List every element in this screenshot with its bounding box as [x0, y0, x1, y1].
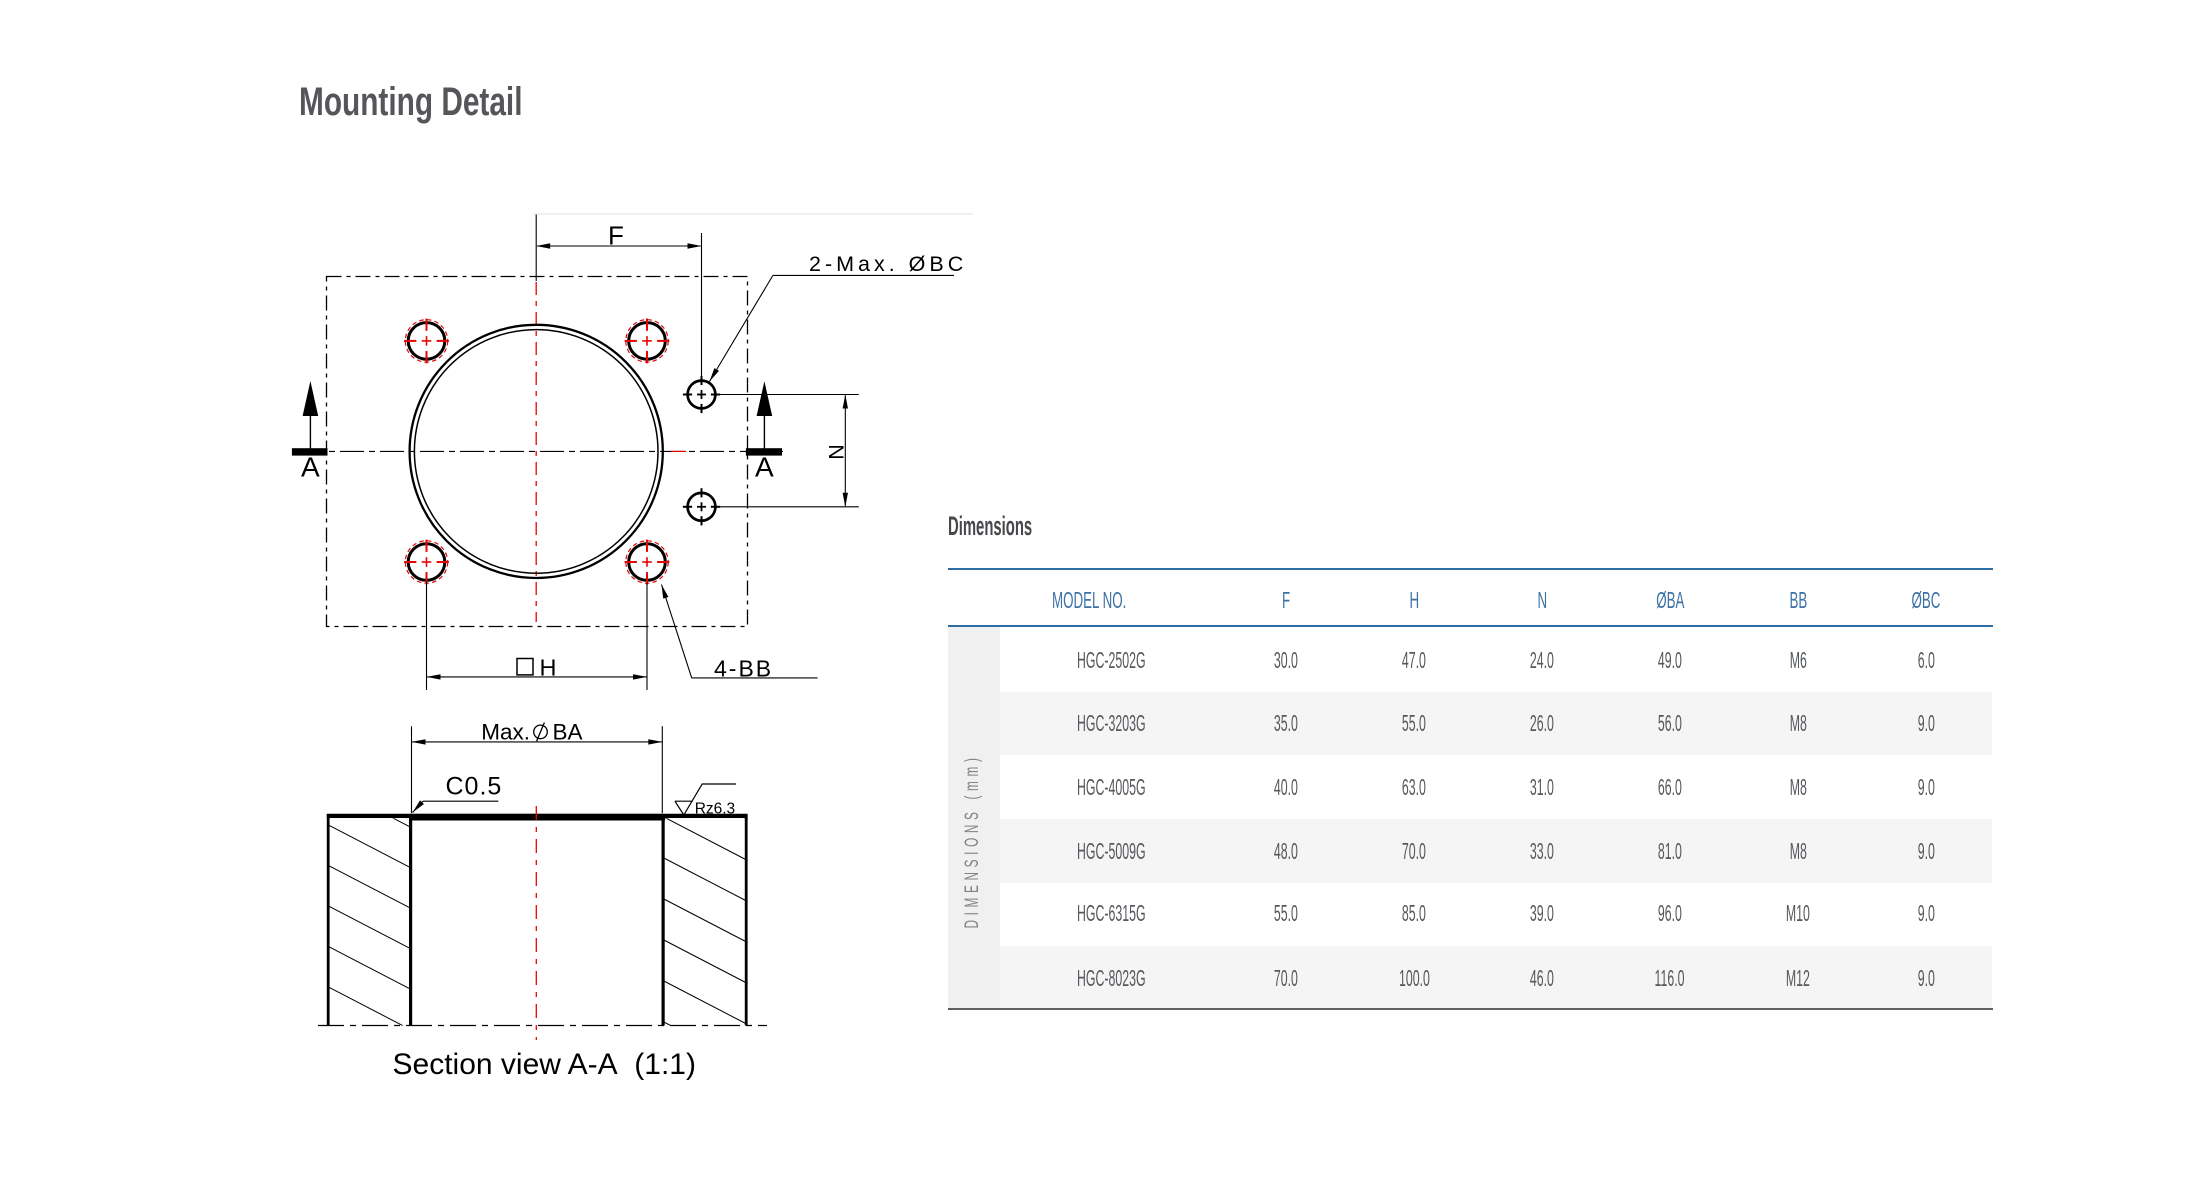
svg-text:A: A: [755, 452, 774, 483]
svg-text:A: A: [301, 452, 320, 483]
svg-text:2-Max. ØBC: 2-Max. ØBC: [809, 252, 967, 276]
svg-text:Rz6.3: Rz6.3: [695, 801, 736, 818]
svg-text:C0.5: C0.5: [446, 773, 503, 801]
svg-text:BA: BA: [553, 720, 583, 745]
svg-text:N: N: [825, 444, 849, 460]
svg-text:Section view A-A (1:1): Section view A-A (1:1): [393, 1048, 696, 1081]
svg-text:H: H: [540, 655, 557, 681]
svg-text:F: F: [608, 221, 624, 251]
svg-text:Max.: Max.: [481, 720, 530, 745]
